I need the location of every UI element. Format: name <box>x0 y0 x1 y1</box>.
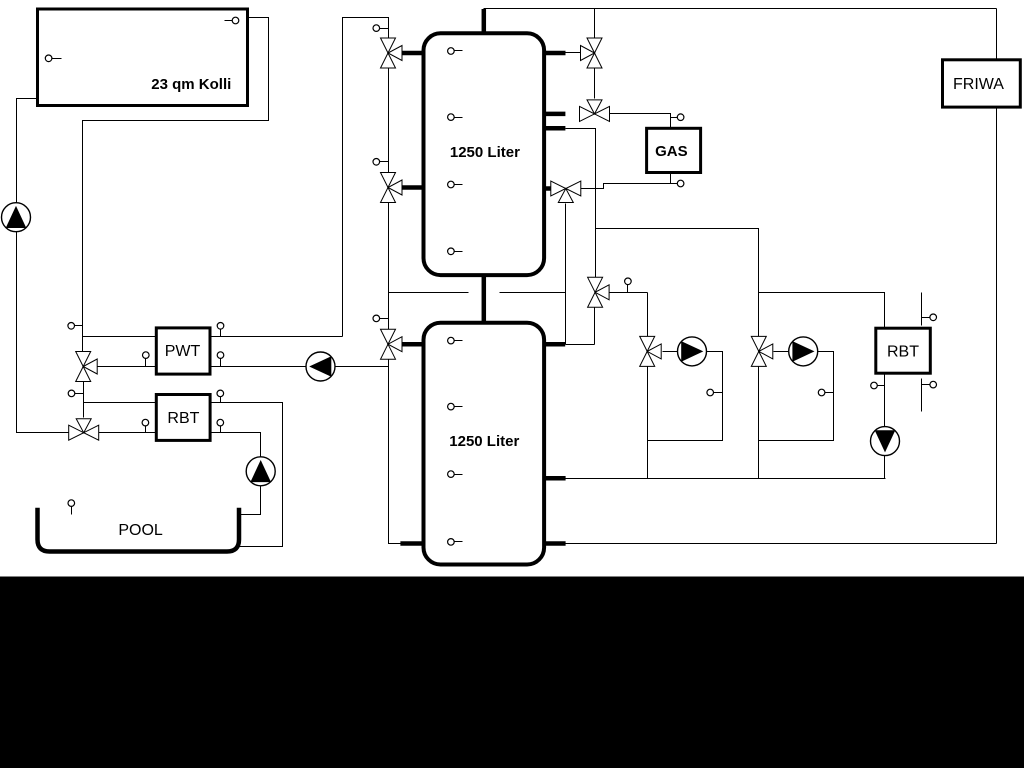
svg-text:PWT: PWT <box>165 343 201 360</box>
svg-text:23 qm Kolli: 23 qm Kolli <box>151 76 231 93</box>
svg-text:RBT: RBT <box>167 410 199 427</box>
svg-text:RBT: RBT <box>887 344 919 361</box>
svg-text:1250 Liter: 1250 Liter <box>449 433 519 450</box>
svg-text:POOL: POOL <box>118 522 163 539</box>
svg-text:GAS: GAS <box>655 143 688 160</box>
svg-text:FRIWA: FRIWA <box>953 76 1004 93</box>
svg-text:1250 Liter: 1250 Liter <box>450 144 520 161</box>
